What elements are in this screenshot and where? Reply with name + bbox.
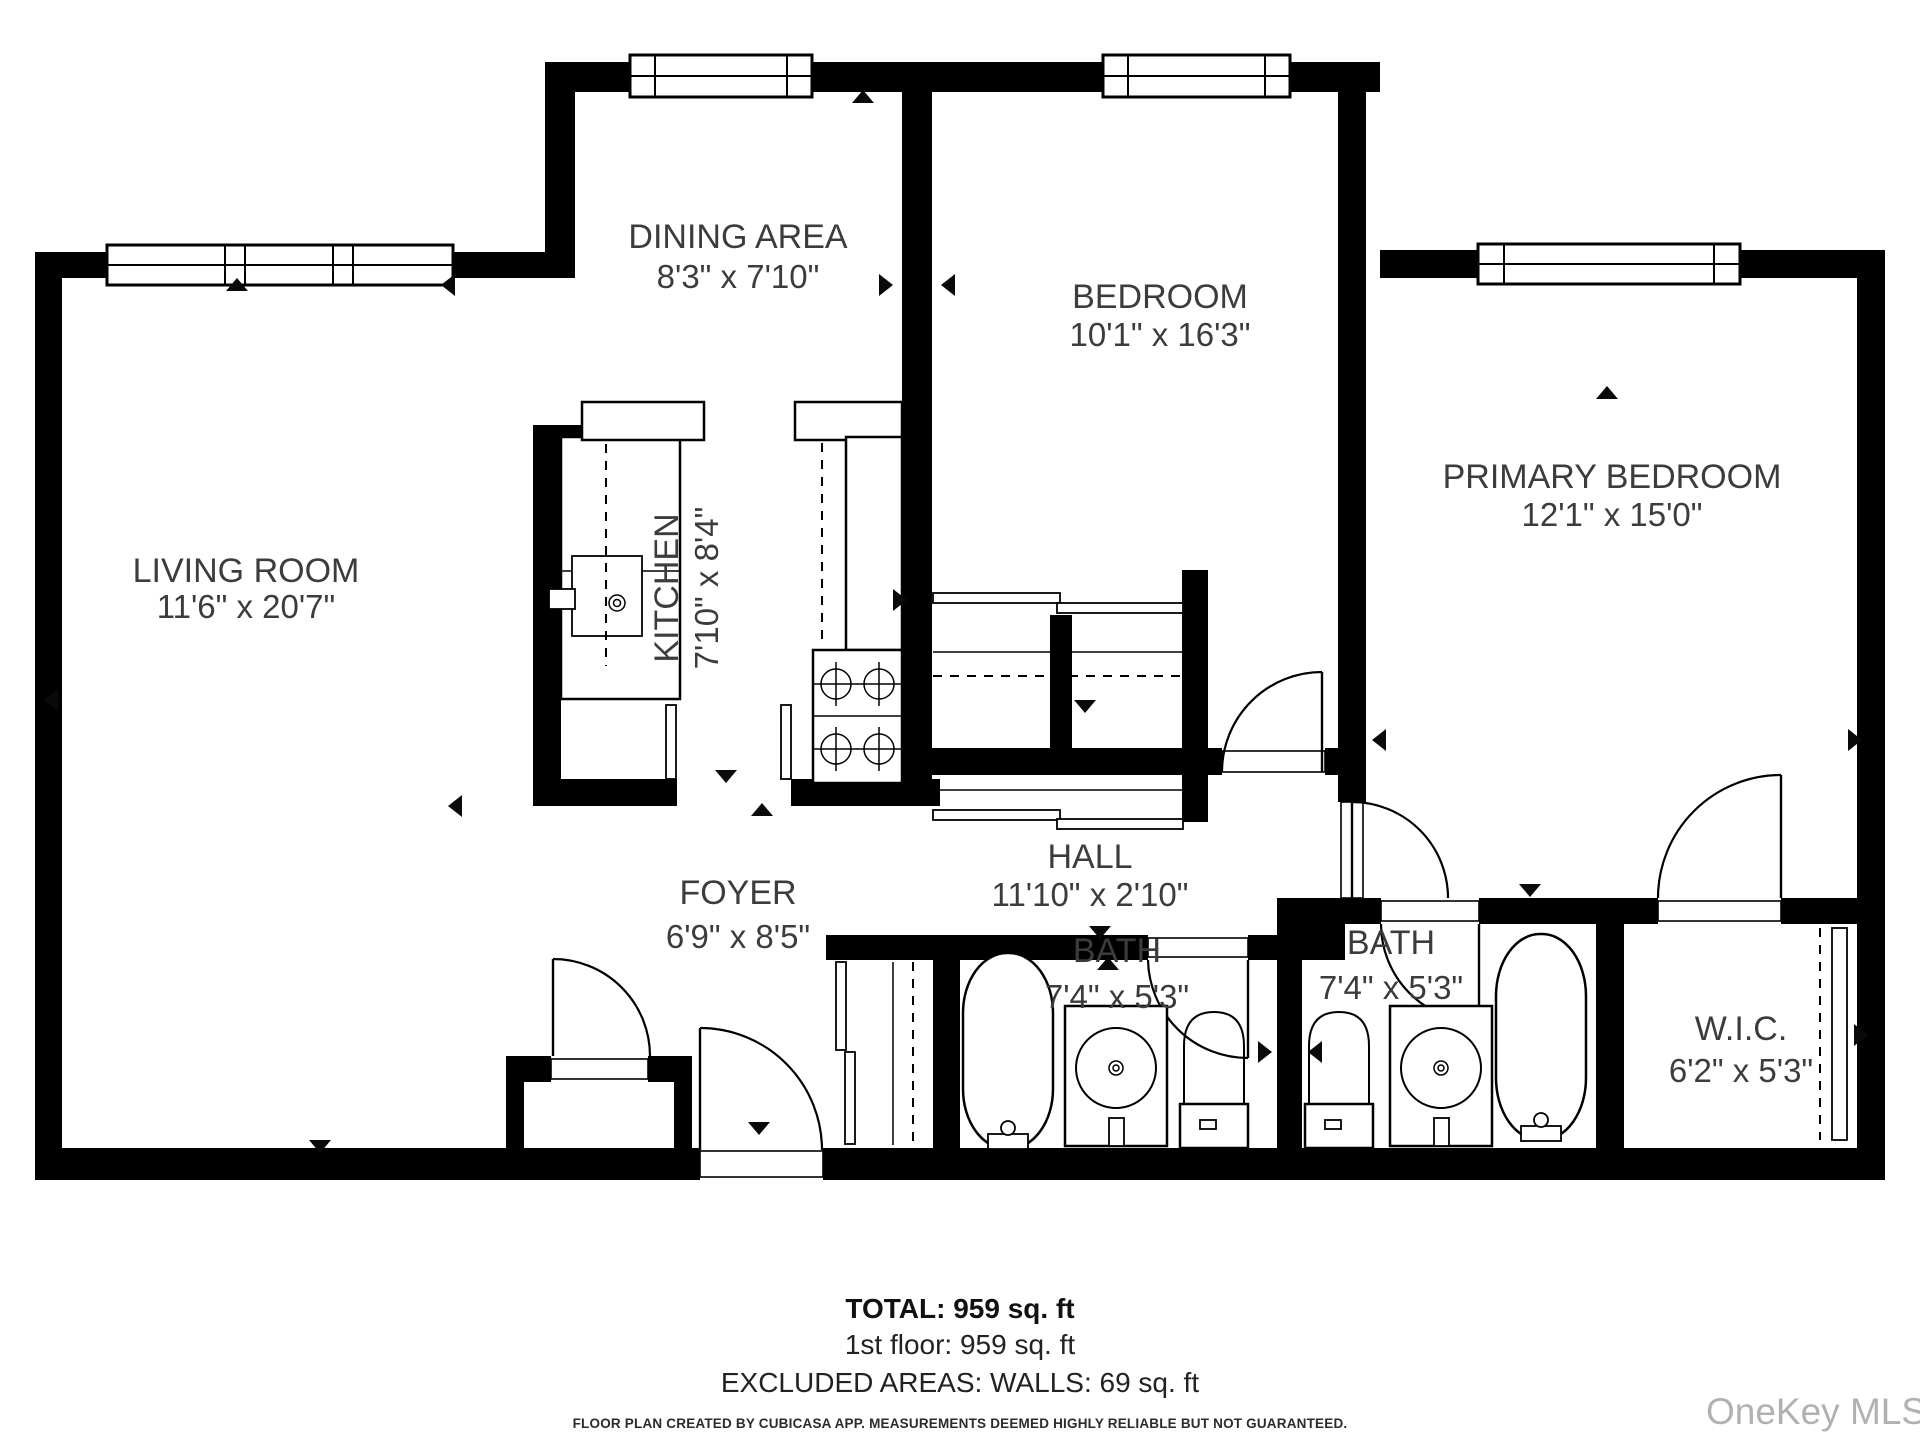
disclaimer-text: FLOOR PLAN CREATED BY CUBICASA APP. MEAS…	[573, 1416, 1348, 1431]
kitchen-cabinet-left	[582, 402, 704, 440]
kitchen-opening-jamb-right	[781, 705, 791, 779]
room-label-kitchen: KITCHEN	[648, 513, 686, 662]
sink-vanity-bath2	[1390, 1006, 1492, 1146]
kitchen-fixtures	[549, 402, 902, 783]
bedroom-door	[1222, 672, 1325, 772]
kitchen-opening-jamb-left	[666, 705, 676, 779]
bath2-fixtures	[1305, 934, 1586, 1148]
bathtub-bath1	[963, 953, 1053, 1149]
room-label-wic: W.I.C.	[1695, 1010, 1788, 1048]
primary-bedroom-door	[1341, 802, 1448, 898]
room-dims-foyer: 6'9" x 8'5"	[666, 918, 810, 955]
room-dims-dining: 8'3" x 7'10"	[657, 258, 820, 295]
entry-door	[700, 1028, 823, 1177]
primary-bedroom-window	[1478, 244, 1740, 284]
room-dims-hall: 11'10" x 2'10"	[992, 876, 1189, 913]
kitchen-counter-right	[846, 437, 902, 650]
bedroom-window	[1103, 55, 1290, 97]
room-dims-living: 11'6" x 20'7"	[157, 588, 336, 625]
room-label-primary: PRIMARY BEDROOM	[1443, 458, 1782, 496]
tub-faucet-bath2	[1521, 1126, 1561, 1141]
room-label-hall: HALL	[1047, 838, 1132, 876]
room-dims-wic: 6'2" x 5'3"	[1669, 1052, 1813, 1089]
floor-area-text: 1st floor: 959 sq. ft	[845, 1329, 1076, 1360]
watermark: OneKey MLS	[1706, 1391, 1920, 1432]
foyer-closet-door	[551, 959, 650, 1079]
bathtub-bath2	[1496, 934, 1586, 1140]
hall-closet	[933, 790, 1183, 829]
living-room-window	[107, 245, 453, 285]
kitchen-faucet	[549, 589, 575, 609]
toilet-bath2	[1305, 1012, 1373, 1148]
footer: TOTAL: 959 sq. ft 1st floor: 959 sq. ft …	[573, 1293, 1920, 1432]
kitchen-cabinet-right	[795, 402, 902, 440]
stove	[813, 650, 902, 783]
tub-faucet-bath1	[988, 1134, 1028, 1149]
room-label-bath1: BATH	[1073, 932, 1161, 970]
dining-window	[630, 55, 812, 97]
foyer-sliding-closet	[836, 962, 913, 1145]
room-label-dining: DINING AREA	[628, 218, 847, 256]
wic-door	[1658, 775, 1781, 921]
room-dims-bath1: 7'4" x 5'3"	[1045, 978, 1189, 1015]
room-label-bedroom: BEDROOM	[1072, 278, 1248, 316]
wic-rod-and-shelf	[1820, 928, 1847, 1140]
floor-plan-canvas: DINING AREA 8'3" x 7'10" BEDROOM 10'1" x…	[0, 0, 1920, 1440]
room-dims-bedroom: 10'1" x 16'3"	[1070, 316, 1251, 353]
room-label-bath2: BATH	[1347, 924, 1435, 962]
total-area-text: TOTAL: 959 sq. ft	[845, 1293, 1074, 1324]
room-dims-kitchen: 7'10" x 8'4"	[688, 507, 725, 670]
room-dims-primary: 12'1" x 15'0"	[1522, 496, 1703, 533]
excluded-area-text: EXCLUDED AREAS: WALLS: 69 sq. ft	[721, 1367, 1199, 1398]
room-label-living: LIVING ROOM	[133, 552, 360, 590]
room-label-foyer: FOYER	[679, 874, 796, 912]
toilet-bath1	[1180, 1012, 1248, 1148]
sink-vanity-bath1	[1065, 1006, 1167, 1146]
room-dims-bath2: 7'4" x 5'3"	[1319, 969, 1463, 1006]
